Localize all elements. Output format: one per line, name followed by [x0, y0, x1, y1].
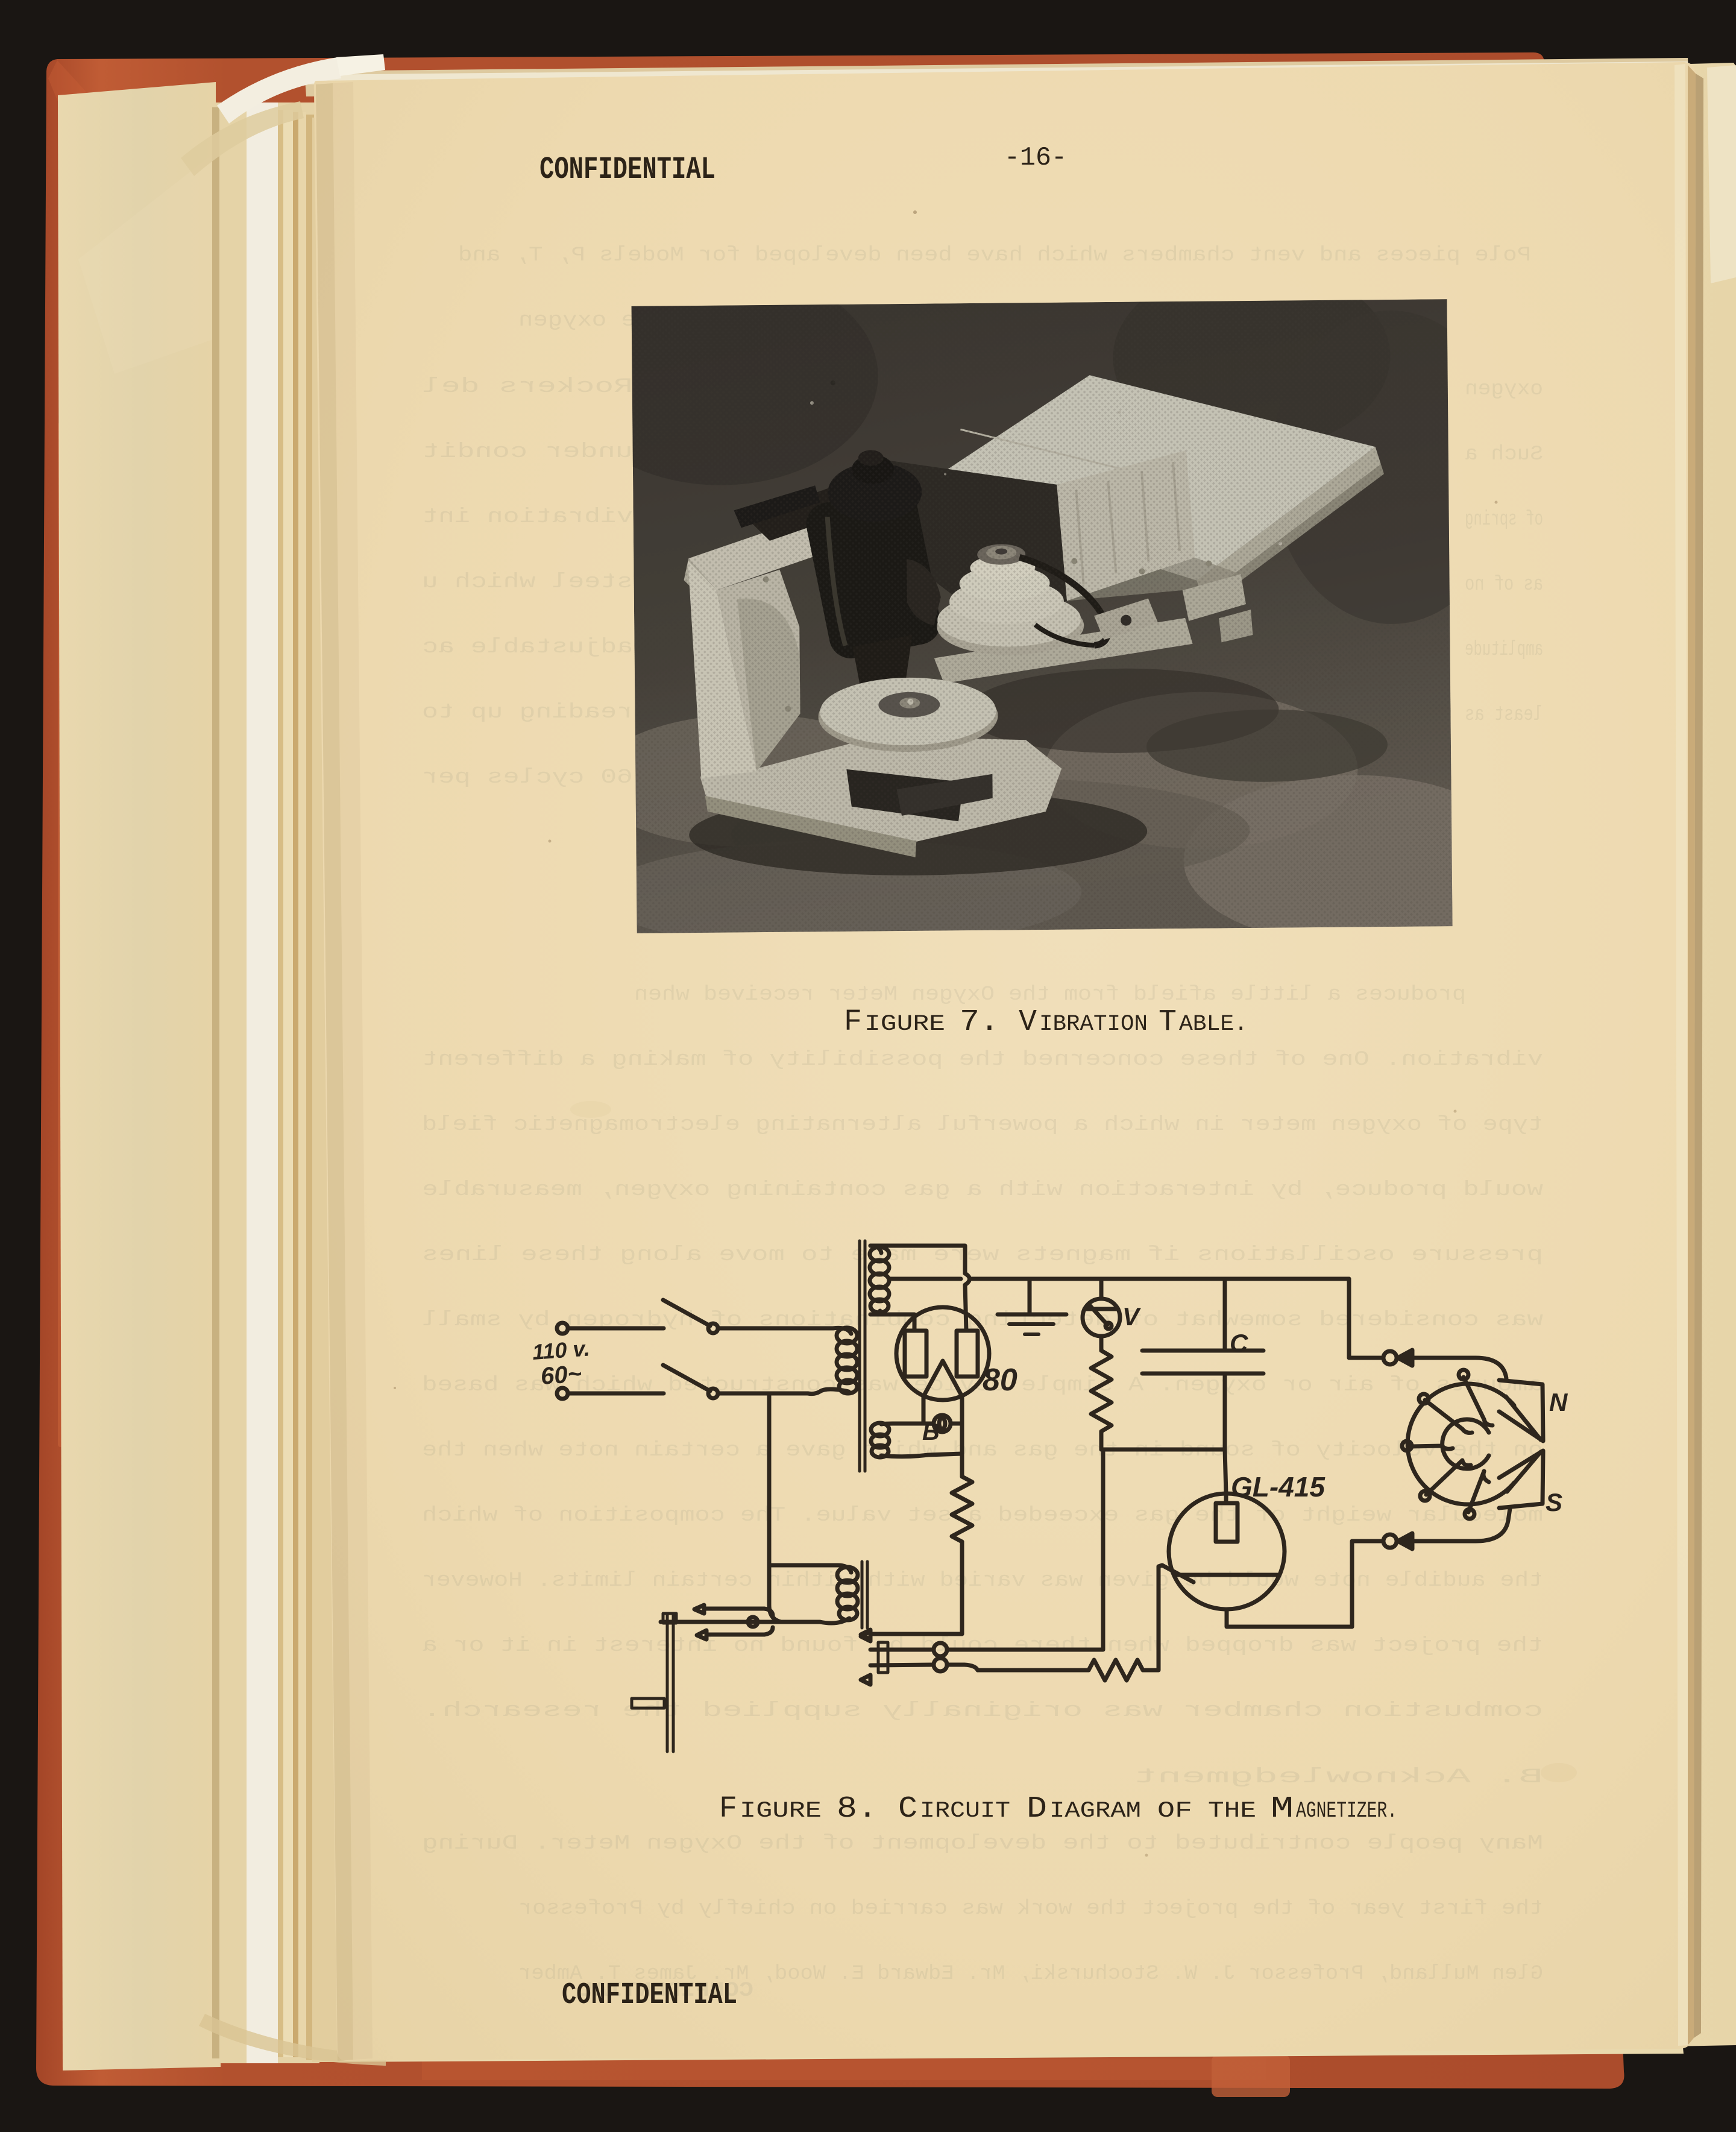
svg-text:OF: OF: [1157, 1799, 1192, 1824]
svg-text:D: D: [1027, 1792, 1047, 1826]
svg-text:60~: 60~: [540, 1360, 583, 1390]
svg-text:vibration int: vibration int: [422, 506, 633, 529]
svg-text:CONFIDENTIAL: CONFIDENTIAL: [562, 1978, 737, 2013]
svg-text:THE: THE: [1208, 1799, 1256, 1824]
svg-text:60 cycles per: 60 cycles per: [422, 766, 633, 789]
svg-text:pressure oscillations if magne: pressure oscillations if magnets were ma…: [422, 1244, 1543, 1267]
svg-text:the audible note would be give: the audible note would be given was vari…: [422, 1569, 1543, 1592]
svg-text:Such a: Such a: [1465, 443, 1543, 466]
svg-text:the project was dropped when t: the project was dropped when there could…: [422, 1635, 1543, 1657]
svg-text:T: T: [1159, 1005, 1177, 1039]
svg-text:IRCUIT: IRCUIT: [920, 1799, 1010, 1824]
svg-text:IBRATION: IBRATION: [1039, 1012, 1148, 1037]
svg-text:molecular weight of the gas ex: molecular weight of the gas exceeded a s…: [422, 1504, 1543, 1527]
svg-text:Rockers del: Rockers del: [422, 376, 633, 399]
svg-text:N: N: [1549, 1388, 1568, 1416]
svg-text:B. Acknowledgment: B. Acknowledgment: [1133, 1766, 1543, 1789]
svg-text:of spring: of spring: [1465, 508, 1543, 531]
svg-text:CONFIDENTIAL: CONFIDENTIAL: [539, 152, 715, 188]
svg-text:110 v.: 110 v.: [532, 1336, 591, 1364]
svg-text:amplitude: amplitude: [1465, 639, 1543, 661]
svg-text:-16-: -16-: [1004, 143, 1067, 173]
svg-text:S: S: [1546, 1488, 1562, 1516]
svg-text:least as: least as: [1465, 704, 1543, 727]
svg-text:would produce, by interaction: would produce, by interaction with a gas…: [422, 1179, 1543, 1202]
svg-text:combustion chamber was origina: combustion chamber was originally suppli…: [422, 1700, 1543, 1723]
svg-text:GL-415: GL-415: [1231, 1471, 1326, 1503]
svg-text:C: C: [898, 1792, 917, 1826]
svg-text:reading up to: reading up to: [422, 701, 633, 724]
svg-text:on the velocity of sound in th: on the velocity of sound in the gas and …: [422, 1439, 1543, 1462]
svg-text:80: 80: [983, 1363, 1017, 1398]
svg-text:vibration. One of these concer: vibration. One of these concerned the po…: [422, 1049, 1543, 1071]
svg-text:IAGRAM: IAGRAM: [1049, 1799, 1141, 1824]
svg-text:oxygen: oxygen: [1465, 378, 1543, 401]
svg-text:7.: 7.: [960, 1005, 999, 1039]
svg-text:steel which u: steel which u: [422, 571, 633, 594]
svg-text:8.: 8.: [837, 1792, 878, 1826]
svg-text:ABLE.: ABLE.: [1179, 1012, 1248, 1037]
svg-text:IGURE: IGURE: [864, 1012, 945, 1037]
svg-text:IGURE: IGURE: [740, 1799, 822, 1824]
svg-text:V: V: [1019, 1005, 1037, 1039]
svg-text:the first year of the project: the first year of the project the work w…: [518, 1897, 1543, 1920]
svg-text:F: F: [719, 1792, 737, 1826]
svg-text:produces a little afield from: produces a little afield from the Oxygen…: [634, 983, 1466, 1006]
svg-text:F: F: [844, 1005, 862, 1039]
svg-text:B: B: [922, 1419, 940, 1445]
svg-text:adjustable ac: adjustable ac: [422, 636, 633, 659]
svg-text:M: M: [1271, 1792, 1294, 1826]
svg-text:Pole pieces and vent chambers: Pole pieces and vent chambers which have…: [458, 244, 1531, 267]
svg-text:V: V: [1122, 1302, 1141, 1331]
svg-text:Many people contributed to the: Many people contributed to the developme…: [422, 1832, 1543, 1855]
svg-text:AGNETIZER.: AGNETIZER.: [1296, 1799, 1397, 1824]
svg-text:C: C: [1230, 1329, 1248, 1357]
svg-text:under condit: under condit: [422, 441, 633, 464]
svg-text:as of no: as of no: [1465, 573, 1543, 596]
